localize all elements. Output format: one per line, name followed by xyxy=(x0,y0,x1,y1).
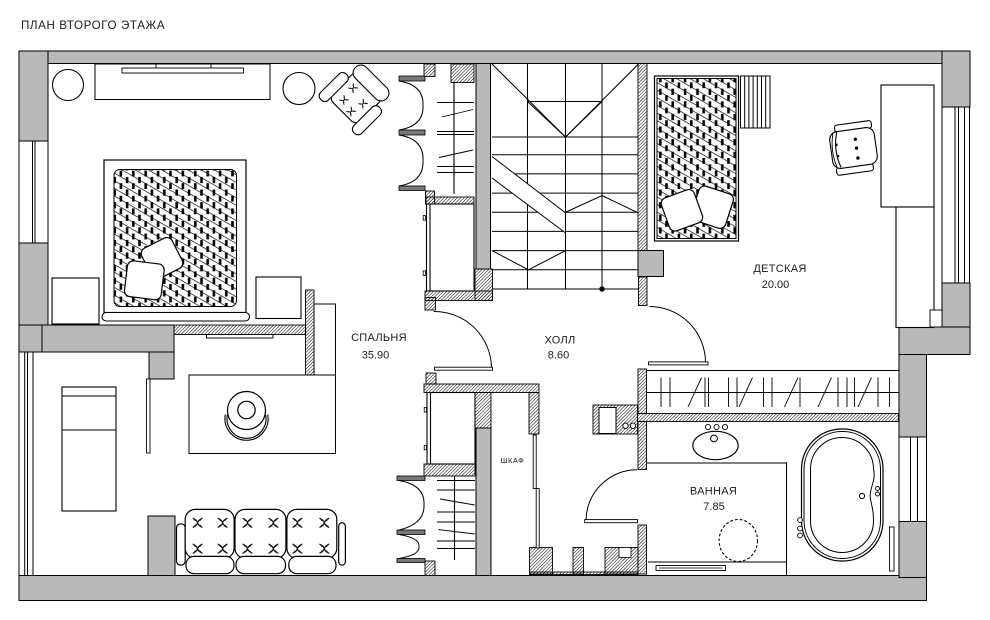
svg-text:7.85: 7.85 xyxy=(703,501,724,513)
svg-text:35.90: 35.90 xyxy=(362,350,390,362)
svg-text:8.60: 8.60 xyxy=(548,350,569,362)
svg-text:ПЛАН ВТОРОГО ЭТАЖА: ПЛАН ВТОРОГО ЭТАЖА xyxy=(21,19,165,32)
svg-text:ХОЛЛ: ХОЛЛ xyxy=(544,335,575,347)
svg-text:СПАЛЬНЯ: СПАЛЬНЯ xyxy=(351,332,407,344)
svg-text:ШКАФ: ШКАФ xyxy=(501,456,525,465)
svg-text:ВАННАЯ: ВАННАЯ xyxy=(690,486,737,498)
svg-text:20.00: 20.00 xyxy=(762,279,790,291)
svg-text:ДЕТСКАЯ: ДЕТСКАЯ xyxy=(753,263,806,275)
